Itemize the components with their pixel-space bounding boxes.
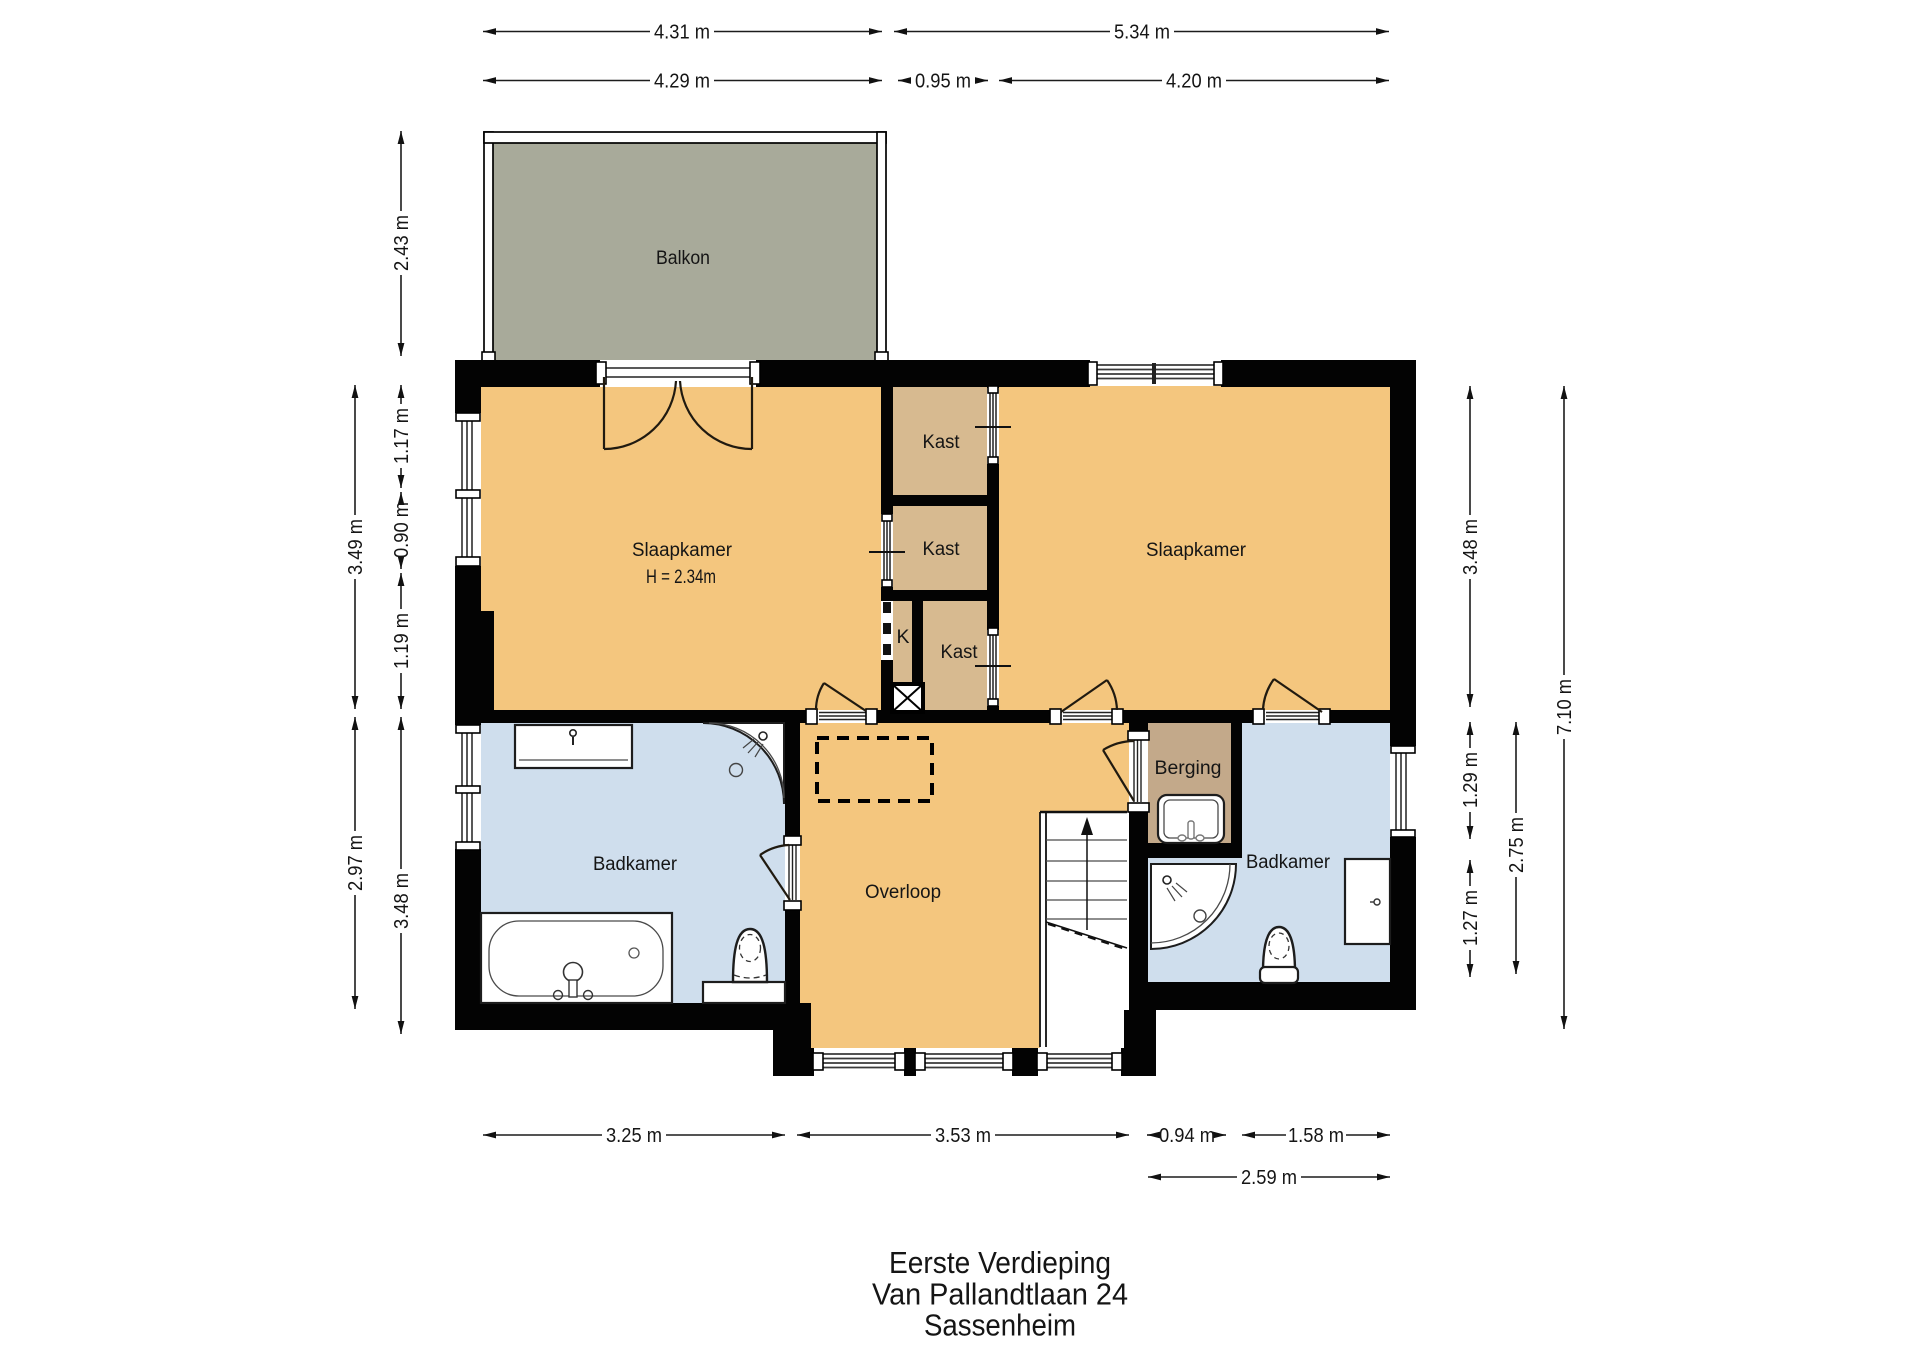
svg-text:Berging: Berging [1155,758,1222,779]
svg-text:H = 2.34m: H = 2.34m [646,567,716,588]
svg-text:0.90 m: 0.90 m [391,502,413,558]
svg-text:3.25 m: 3.25 m [606,1125,662,1147]
svg-text:K: K [897,627,910,648]
svg-text:Kast: Kast [941,642,979,663]
svg-text:2.97 m: 2.97 m [345,835,367,891]
svg-text:1.29 m: 1.29 m [1460,752,1482,808]
svg-text:Sassenheim: Sassenheim [924,1308,1076,1343]
svg-text:5.34 m: 5.34 m [1114,22,1170,44]
svg-text:1.27 m: 1.27 m [1460,890,1482,946]
svg-text:Badkamer: Badkamer [1246,852,1331,873]
svg-text:Slaapkamer: Slaapkamer [632,540,733,561]
svg-text:Badkamer: Badkamer [593,854,678,875]
svg-text:4.20 m: 4.20 m [1166,71,1222,93]
svg-text:1.58 m: 1.58 m [1288,1125,1344,1147]
svg-text:7.10 m: 7.10 m [1554,679,1576,735]
svg-text:2.59 m: 2.59 m [1241,1167,1297,1189]
svg-text:1.19 m: 1.19 m [391,613,413,669]
svg-text:3.48 m: 3.48 m [1460,519,1482,575]
svg-text:Kast: Kast [923,432,961,453]
svg-text:Van Pallandtlaan 24: Van Pallandtlaan 24 [872,1277,1128,1312]
svg-text:4.31 m: 4.31 m [654,22,710,44]
svg-text:3.48 m: 3.48 m [391,873,413,929]
svg-text:3.53 m: 3.53 m [935,1125,991,1147]
svg-text:2.75 m: 2.75 m [1506,817,1528,873]
svg-text:0.94 m: 0.94 m [1159,1125,1215,1147]
svg-text:Slaapkamer: Slaapkamer [1146,540,1247,561]
svg-text:1.17 m: 1.17 m [391,408,413,464]
svg-text:Balkon: Balkon [656,248,710,269]
svg-text:Kast: Kast [923,539,961,560]
svg-text:2.43 m: 2.43 m [391,215,413,271]
svg-text:3.49 m: 3.49 m [345,519,367,575]
svg-text:4.29 m: 4.29 m [654,71,710,93]
svg-text:Eerste Verdieping: Eerste Verdieping [889,1245,1111,1280]
svg-text:Overloop: Overloop [865,882,941,903]
svg-text:0.95 m: 0.95 m [915,71,971,93]
